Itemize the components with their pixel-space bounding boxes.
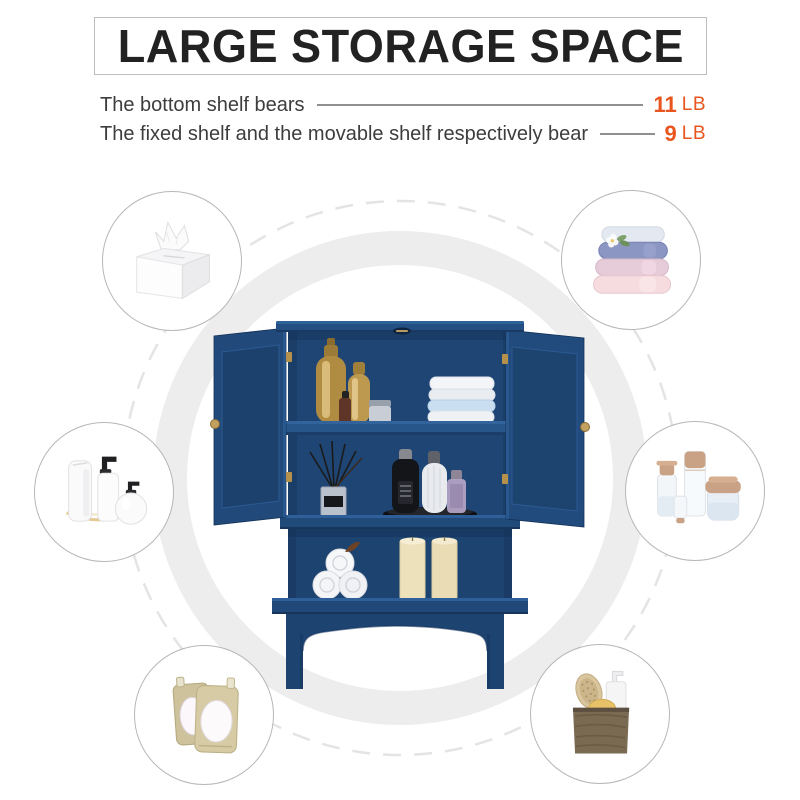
spec-label: The fixed shelf and the movable shelf re… (100, 123, 588, 146)
skincare-set-icon (643, 439, 747, 543)
connector-line (317, 104, 644, 106)
title-box: LARGE STORAGE SPACE (94, 17, 707, 75)
weight-unit: LB (682, 94, 706, 116)
lotion-set-icon (52, 440, 156, 544)
weight-value: 11 (653, 92, 676, 118)
folded-towels-circle (561, 190, 701, 330)
tissue-box-icon (120, 209, 224, 313)
spec-row-bottom-shelf: The bottom shelf bears 11 LB (100, 91, 706, 119)
skincare-set-circle (625, 421, 765, 561)
refill-pouches-circle (134, 645, 274, 785)
solid-ring (170, 248, 630, 708)
lotion-set-circle (34, 422, 174, 562)
spec-row-shelves: The fixed shelf and the movable shelf re… (100, 120, 706, 148)
folded-towels-icon (579, 208, 683, 312)
refill-pouches-icon (152, 663, 256, 767)
product-infographic: LARGE STORAGE SPACE The bottom shelf bea… (0, 0, 800, 800)
weight-unit: LB (682, 123, 706, 145)
weight-value: 9 (665, 121, 677, 147)
connector-line (600, 133, 654, 135)
bath-set-icon (548, 662, 652, 766)
tissue-box-circle (102, 191, 242, 331)
spec-label: The bottom shelf bears (100, 94, 305, 117)
bath-set-circle (530, 644, 670, 784)
page-title: LARGE STORAGE SPACE (117, 19, 683, 73)
